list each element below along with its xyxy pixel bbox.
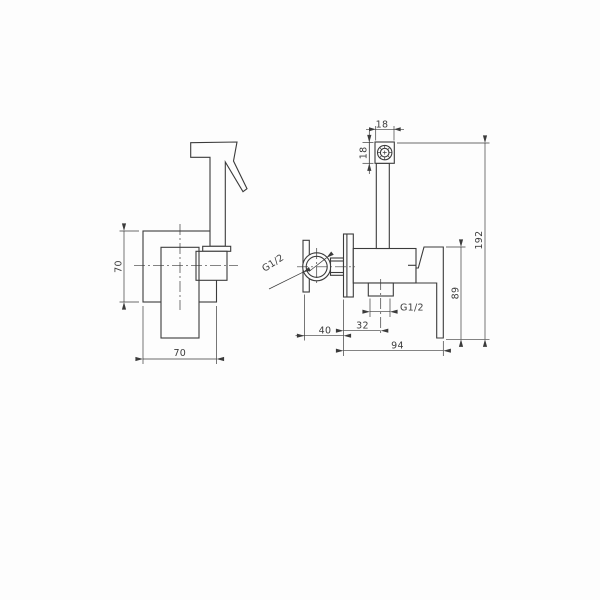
lever-handle-side — [416, 247, 443, 338]
dim-inlet-offset: 40 — [296, 295, 344, 357]
dim-label-handle-length: 89 — [450, 287, 461, 300]
dim-front-height: 70 — [114, 231, 140, 302]
dim-label-spout-width: 18 — [376, 119, 389, 130]
mixer-body-side — [353, 249, 416, 284]
side-view: G1/2 18 18 G1/2 — [260, 119, 489, 356]
front-view: 70 70 — [114, 142, 248, 364]
wall-plate-side — [344, 234, 354, 297]
lever-handle-front — [161, 247, 199, 338]
dim-outlet-offset: 32 — [344, 321, 381, 332]
dim-label-spout-height: 18 — [358, 147, 369, 160]
dim-label-inlet-thread: G1/2 — [260, 252, 286, 274]
spray-flange — [203, 246, 231, 251]
dim-label-overall-depth: 94 — [391, 340, 404, 351]
dim-spout-width: 18 — [366, 119, 404, 140]
technical-drawing-canvas: 70 70 — [0, 0, 600, 600]
dim-label-outlet-offset: 32 — [356, 321, 369, 332]
dim-label-inlet-offset: 40 — [319, 326, 332, 337]
dim-outlet-thread: G1/2 — [370, 299, 424, 318]
spray-post-fitting — [375, 142, 394, 163]
drawing-svg: 70 70 — [0, 0, 600, 600]
spray-post-tube — [376, 163, 389, 248]
dim-overall-depth: 94 — [344, 340, 444, 356]
knurl-ticks — [378, 145, 392, 159]
dim-handle-length: 89 — [446, 247, 490, 339]
dim-label-front-width: 70 — [173, 348, 186, 359]
dim-label-front-height: 70 — [114, 260, 125, 273]
dim-spout-height: 18 — [358, 131, 373, 174]
dim-label-outlet-thread: G1/2 — [400, 302, 424, 313]
dim-label-overall-height: 192 — [474, 230, 485, 249]
